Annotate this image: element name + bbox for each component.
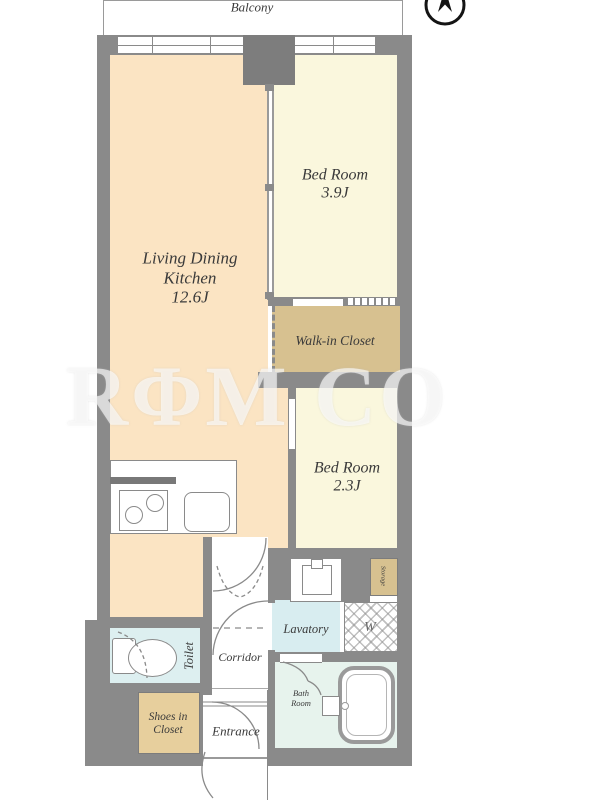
washstand-tap bbox=[311, 559, 323, 569]
lavatory-left-wall-lower bbox=[268, 650, 275, 748]
kitchen-counter-edge bbox=[110, 477, 176, 484]
toilet-top-wall bbox=[97, 617, 212, 628]
stove bbox=[119, 490, 168, 531]
left-wall-upper bbox=[97, 35, 110, 620]
lavatory-left-wall-upper bbox=[268, 555, 275, 603]
window-top-right bbox=[295, 35, 375, 55]
bedroom2-label: Bed Room 2.3J bbox=[314, 460, 380, 497]
balcony-label: Balcony bbox=[231, 1, 274, 16]
window-top-left bbox=[118, 35, 243, 55]
washer-label: W bbox=[364, 620, 376, 636]
bath-label: Bath Room bbox=[291, 689, 311, 709]
floor-plan: Balcony bbox=[0, 0, 600, 800]
wic-bottom-wall bbox=[258, 372, 397, 388]
bedroom1-label: Bed Room 3.9J bbox=[302, 167, 368, 204]
lavatory-label: Lavatory bbox=[283, 622, 328, 636]
corridor-label: Corridor bbox=[218, 651, 261, 665]
shoes-bottom-wall bbox=[138, 752, 203, 766]
toilet-bottom-corner bbox=[85, 683, 138, 766]
bottom-wall-right bbox=[268, 748, 412, 766]
ldk-label: Living Dining Kitchen 12.6J bbox=[143, 249, 238, 308]
entrance-label: Entrance bbox=[212, 725, 260, 740]
wic-label: Walk-in Closet bbox=[295, 333, 374, 349]
corridor-left-wall bbox=[203, 537, 212, 690]
balcony-left-line bbox=[103, 0, 104, 36]
bedroom2-door-gap bbox=[289, 398, 295, 450]
pillar bbox=[243, 35, 295, 85]
wic-louver-marks bbox=[346, 298, 396, 305]
kitchen-sink bbox=[184, 492, 230, 532]
shoes-label: Shoes in Closet bbox=[149, 711, 188, 737]
ldk-floor-strip bbox=[268, 388, 290, 555]
ldk-floor-lower bbox=[110, 537, 203, 619]
bath-door-gap bbox=[280, 653, 322, 663]
balcony-right-line bbox=[402, 0, 403, 36]
toilet-bowl bbox=[128, 639, 177, 677]
toilet-label: Toilet bbox=[182, 642, 196, 670]
washstand-basin bbox=[302, 565, 332, 595]
bedroom2-bottom-wall bbox=[268, 548, 397, 558]
washstand-storage-divider bbox=[340, 558, 370, 602]
partition-line-left bbox=[267, 85, 269, 300]
partition-line-right bbox=[272, 85, 274, 300]
entrance-threshold-line bbox=[203, 757, 268, 759]
compass-north-icon bbox=[421, 0, 469, 29]
bathtub bbox=[338, 666, 395, 744]
corridor-floor bbox=[212, 537, 268, 688]
right-wall bbox=[397, 35, 412, 766]
bath-shelf bbox=[322, 696, 340, 716]
washstand-left-wall bbox=[275, 558, 290, 600]
storage-label: Storage bbox=[379, 566, 386, 586]
